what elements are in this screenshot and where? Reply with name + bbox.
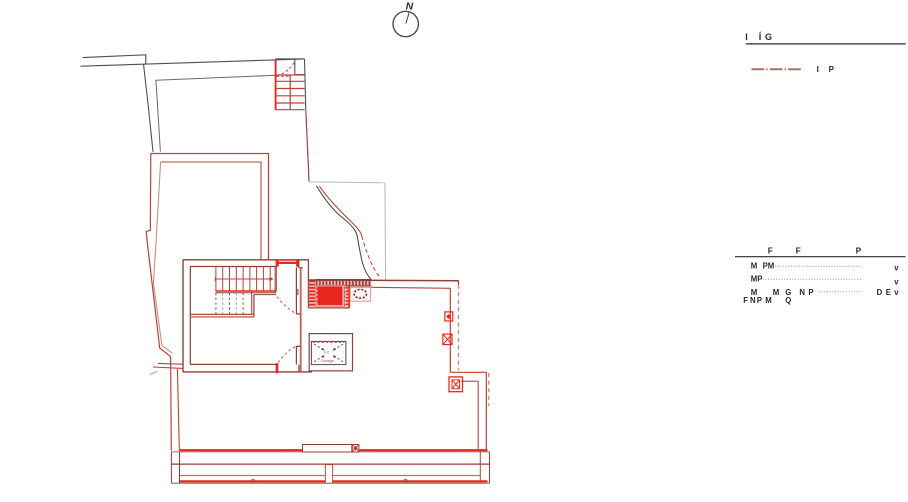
svg-text:N: N: [799, 288, 805, 297]
svg-text:v: v: [894, 278, 899, 287]
svg-text:P: P: [808, 288, 813, 297]
svg-text:M: M: [751, 262, 758, 271]
svg-text:G: G: [765, 32, 772, 42]
svg-text:F: F: [768, 245, 773, 255]
svg-text:N: N: [406, 0, 414, 12]
svg-text:P: P: [856, 245, 862, 255]
svg-text:v: v: [894, 263, 899, 272]
svg-text:D: D: [877, 288, 883, 297]
svg-text:MP: MP: [751, 275, 763, 284]
svg-text:M: M: [765, 296, 772, 305]
svg-text:P: P: [829, 65, 835, 74]
svg-text:E: E: [886, 288, 891, 297]
svg-text:F: F: [796, 245, 801, 255]
svg-text:I: I: [745, 32, 748, 42]
svg-text:N: N: [750, 296, 756, 305]
svg-text:3 C: 3 C: [324, 351, 330, 355]
svg-text:M: M: [773, 288, 780, 297]
svg-text:F: F: [743, 296, 748, 305]
svg-text:Q: Q: [785, 296, 791, 305]
svg-text:P: P: [757, 296, 762, 305]
svg-text:Garatge: Garatge: [321, 359, 334, 363]
svg-text:v: v: [894, 288, 899, 297]
svg-text:I: I: [817, 65, 819, 74]
